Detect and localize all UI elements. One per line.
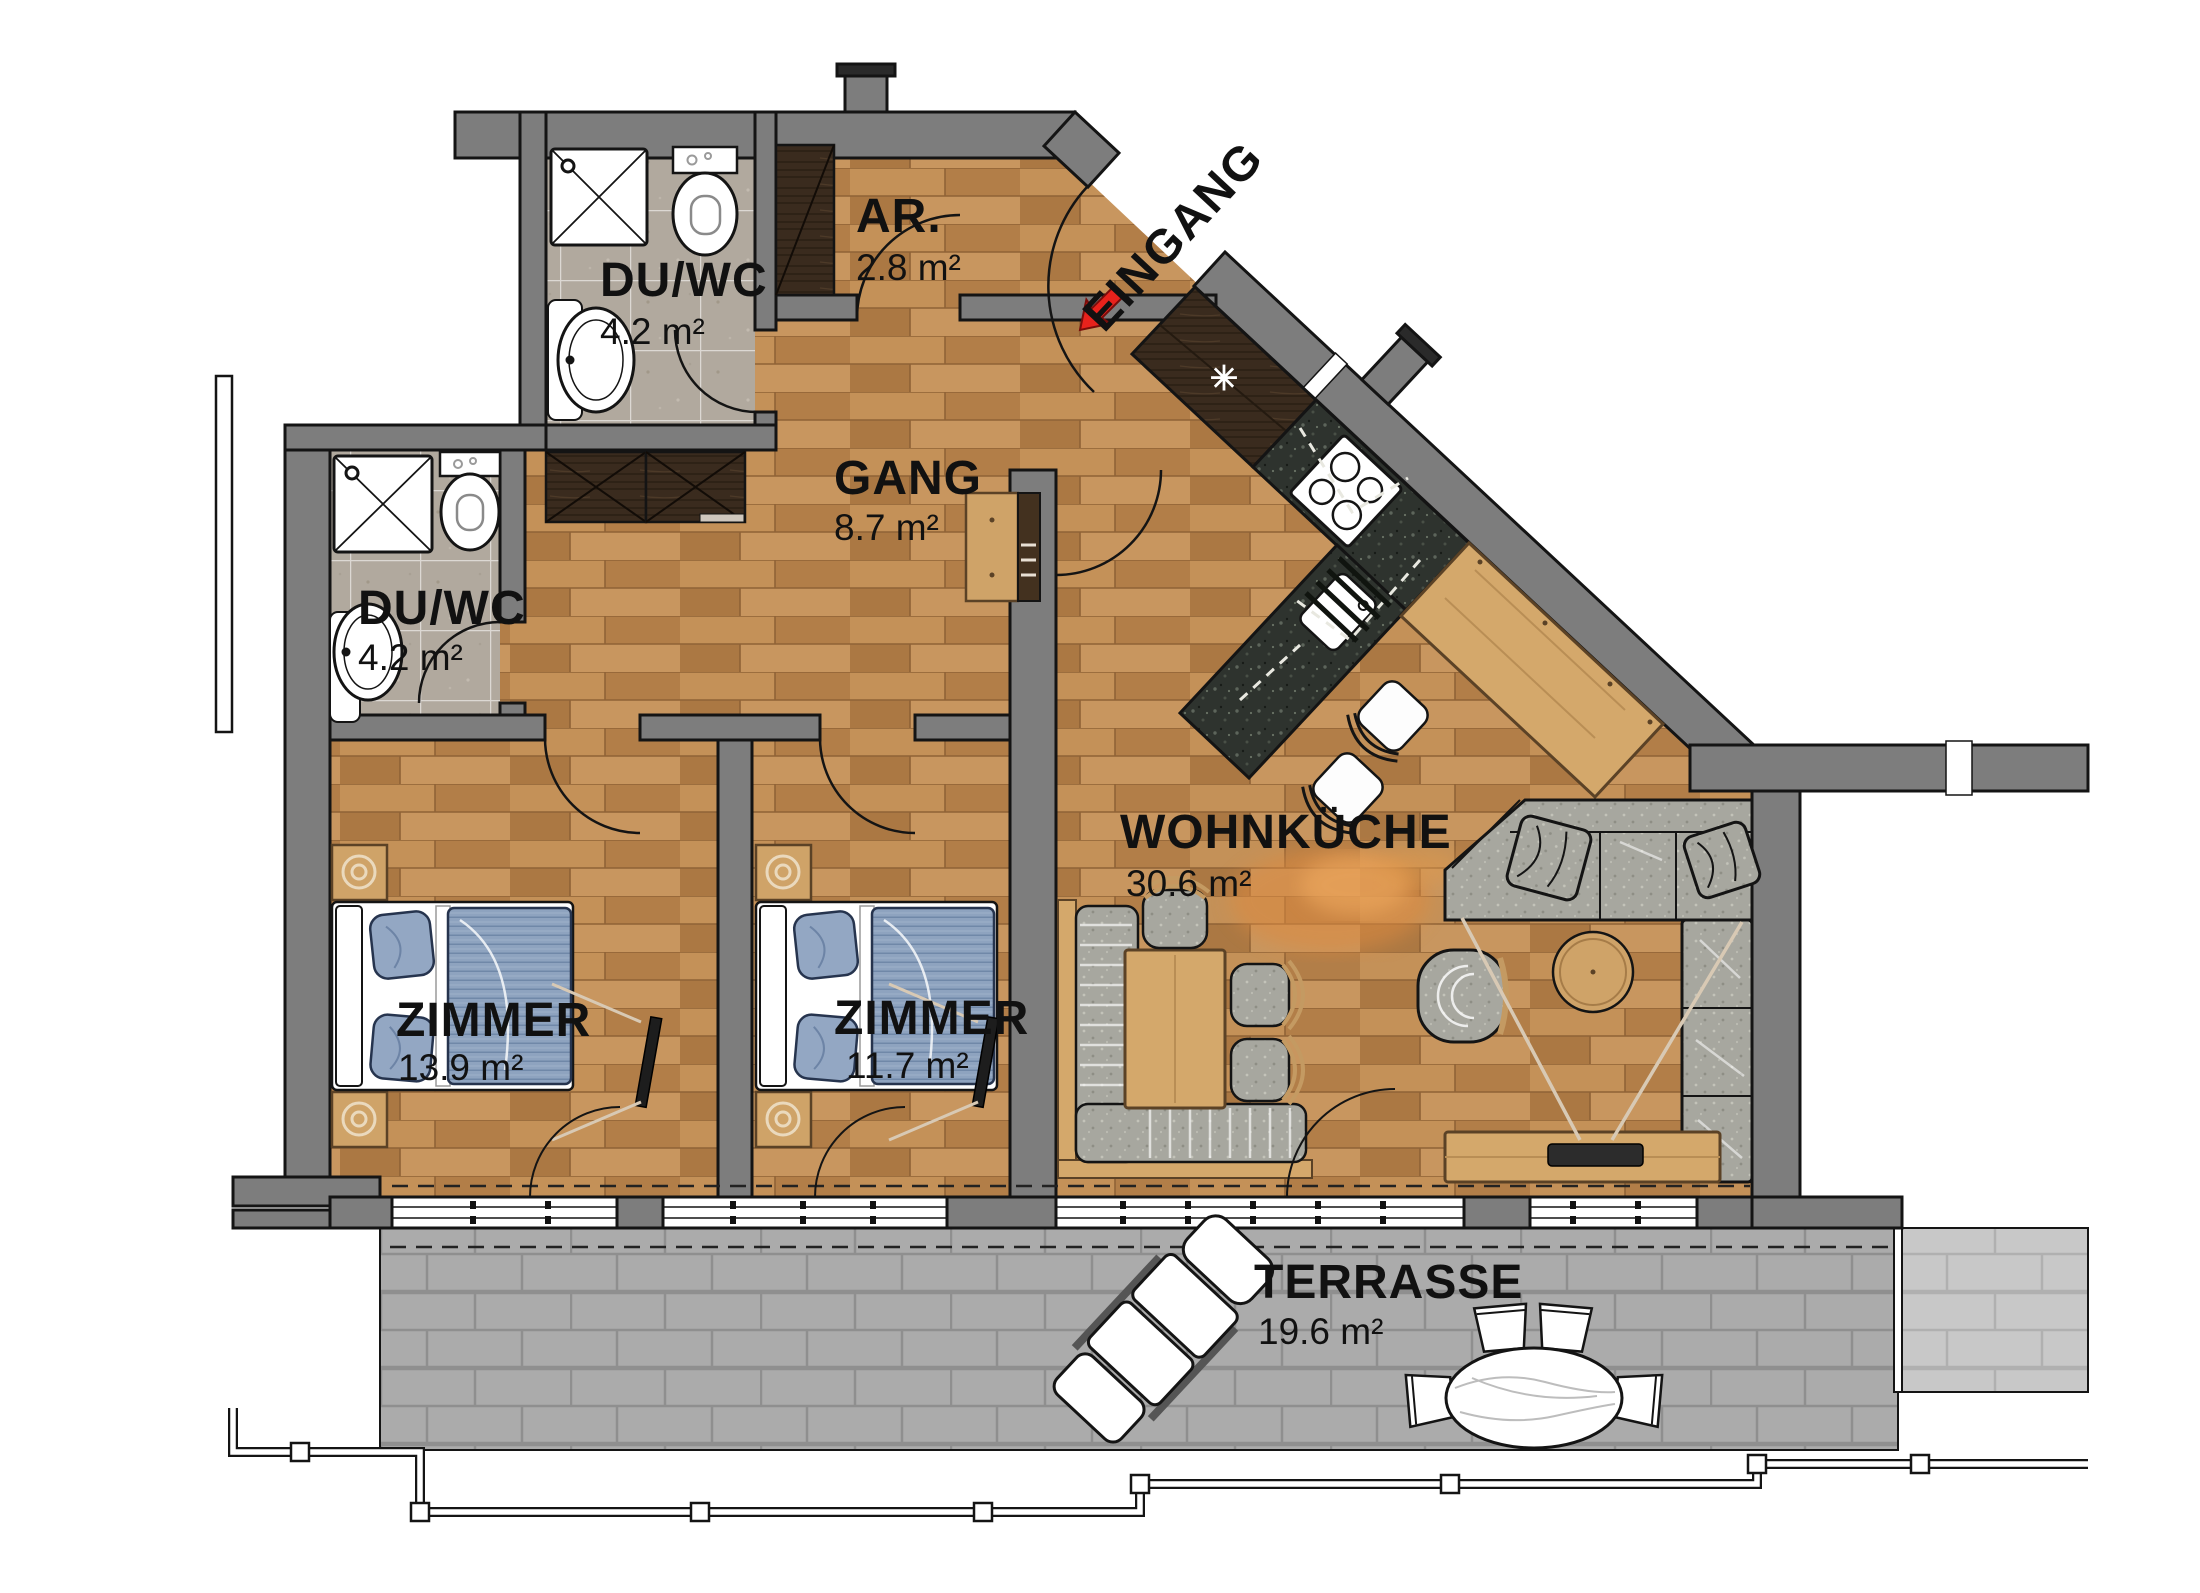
chimney-cap [837, 64, 895, 76]
room-label-wohnkueche: WOHNKÜCHE [1120, 806, 1452, 859]
wall-between-bedrooms [718, 740, 752, 1197]
wardrobe-ar [776, 145, 834, 295]
sideboard [1445, 1132, 1720, 1182]
wall-ar-bottom-a [776, 295, 857, 320]
nightstand [756, 845, 811, 900]
wall-bath-left-top [285, 425, 546, 450]
wall-bedrooms-top-b [640, 715, 820, 740]
shower-icon [334, 456, 432, 552]
toilet-icon [440, 452, 500, 550]
kitchen-asterisk: ✳ [1210, 360, 1239, 398]
floor-plan-page: ✳ [0, 0, 2200, 1593]
room-label-ar: AR. [856, 190, 942, 243]
room-area-ar: 2.8 m² [856, 247, 961, 288]
wall-left [285, 425, 330, 1197]
wall-bottom-right-block [1752, 1197, 1902, 1228]
coffee-table [1553, 932, 1633, 1012]
wall-right-gap [1946, 741, 1972, 795]
wall-right-vertical [1752, 791, 1800, 1197]
room-area-gang: 8.7 m² [834, 507, 939, 548]
room-area-terrasse: 19.6 m² [1258, 1311, 1383, 1352]
nightstand [332, 1092, 387, 1147]
neighbor-terrace-floor [1902, 1228, 2088, 1392]
room-label-gang: GANG [834, 452, 982, 505]
tv-on-sideboard [1548, 1144, 1643, 1166]
glazing [392, 1197, 1752, 1228]
wall-right-horizontal [1690, 745, 2088, 791]
room-area-zimmer-1: 13.9 m² [398, 1047, 523, 1088]
room-label-zimmer-1: ZIMMER [396, 994, 591, 1047]
nightstand [332, 845, 387, 900]
terrace-divider-joint [1894, 1228, 1902, 1392]
room-label-terrasse: TERRASSE [1254, 1256, 1523, 1309]
room-label-duwc-left: DU/WC [358, 582, 526, 635]
wall-bath-left-right-b [500, 703, 525, 715]
wall-bedrooms-top-a [330, 715, 545, 740]
wall-bath-top-left [520, 112, 546, 450]
wardrobe-hall [546, 452, 745, 522]
wall-bedrooms-top-c [915, 715, 1010, 740]
room-area-duwc-top: 4.2 m² [600, 311, 705, 352]
toilet-icon [673, 147, 737, 255]
room-label-zimmer-2: ZIMMER [834, 992, 1029, 1045]
chimney-stub [845, 74, 887, 112]
balcony-divider [216, 376, 232, 732]
nightstand [756, 1092, 811, 1147]
room-area-wohnkueche: 30.6 m² [1126, 863, 1251, 904]
room-area-zimmer-2: 11.7 m² [846, 1045, 969, 1086]
room-area-duwc-left: 4.2 m² [358, 637, 463, 678]
armchair [1418, 950, 1506, 1042]
wall-bath-top-bottom [546, 425, 776, 450]
room-label-duwc-top: DU/WC [600, 254, 768, 307]
floor-plan: ✳ [0, 0, 2200, 1593]
tall-cabinet [966, 493, 1040, 601]
shower-icon [551, 149, 647, 245]
terrace-chair [1536, 1304, 1592, 1352]
terrace-chair [1474, 1304, 1530, 1352]
